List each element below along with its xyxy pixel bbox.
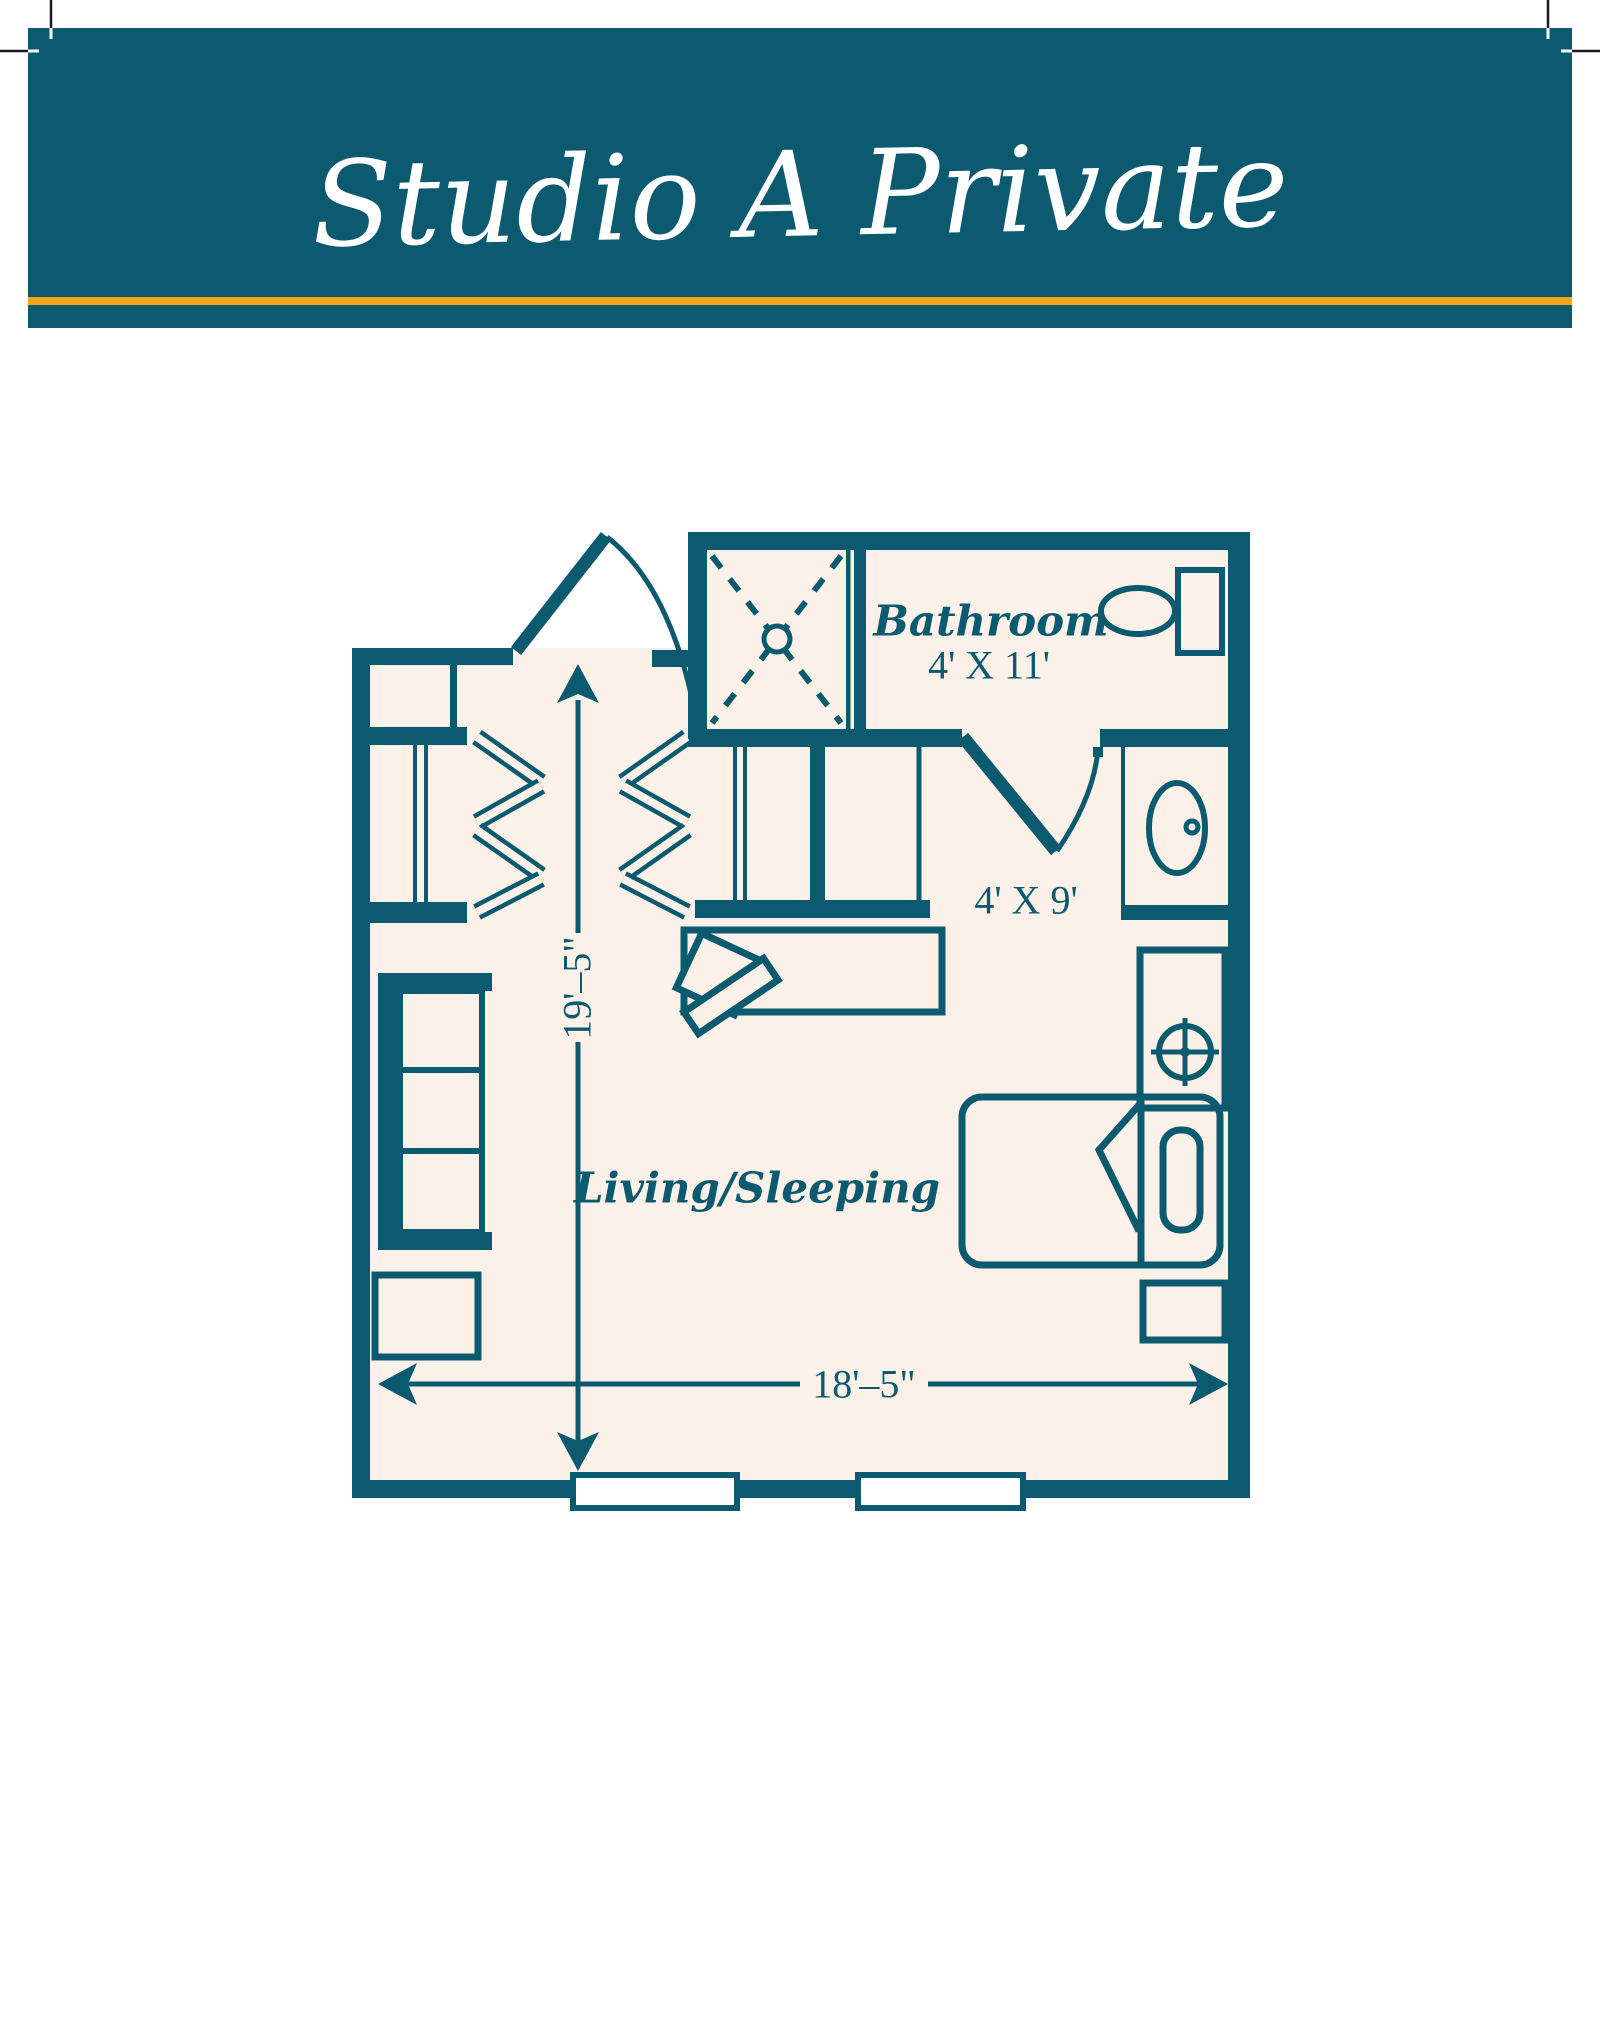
entry-top-wall [352,648,513,665]
shower-left-wall [688,532,707,747]
floorplan-sheet: Studio A Private [0,0,1600,2040]
bathroom-label: Bathroom [872,597,1108,646]
closet1-bottom-wall [352,902,467,923]
entry-closet-divider [450,665,457,727]
banner: Studio A Private [28,28,1572,328]
vanity-bottom-wall [1121,905,1228,920]
width-dimension-label: 18'–5" [812,1362,916,1407]
bathroom-dimension-label: 4' X 11' [928,643,1050,688]
page: Studio A Private [0,0,1600,2040]
height-dimension-label: 19'–5" [555,936,600,1040]
divider-gap-line [851,550,855,729]
right-wall [1228,532,1250,1498]
bathroom-south-wall-right [1100,729,1228,747]
closet2-bottom-wall [695,900,930,918]
closet2-divider [810,743,825,900]
left-wall [352,648,370,1498]
page-title: Studio A Private [310,115,1289,273]
closet1-top-wall [352,727,467,745]
entry-door-leaf [516,536,606,651]
shower-bathroom-divider [846,550,866,729]
window-right [858,1475,1023,1508]
shower-drain-icon [764,626,790,652]
sofa-back [378,973,400,1250]
living-sleeping-label: Living/Sleeping [573,1164,940,1213]
banner-accent-line [28,297,1572,305]
bottom-wall [352,1480,1250,1498]
hall-dimension-label: 4' X 9' [974,878,1077,923]
bathroom-top-wall [688,532,1250,550]
floor-plan: 19'–5" 18'–5" Bathroom 4' X 11' 4' X 9' … [352,532,1250,1508]
window-left [573,1475,737,1508]
